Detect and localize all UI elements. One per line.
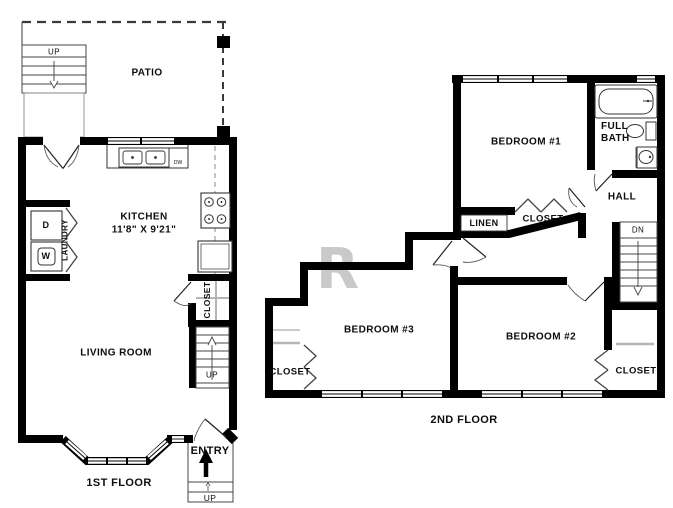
patio-label: PATIO [131,68,162,79]
dishwasher-label: DW [174,160,182,166]
full-bath-line1: FULL [601,121,630,133]
first-floor-title: 1ST FLOOR [86,477,151,489]
entry-steps-up-label: UP [204,493,217,503]
patio-stairs-up-label: UP [48,48,60,57]
bedroom2-label: BEDROOM #2 [506,332,576,343]
full-bath-label: FULL BATH [601,121,630,144]
bedroom3-closet-label: CLOSET [270,367,311,378]
interior-stairs-up-label: UP [206,371,218,380]
living-room-label: LIVING ROOM [80,348,152,359]
floor-plan: R [0,0,673,508]
bedroom1-label: BEDROOM #1 [491,137,561,148]
laundry-label: LAUNDRY [61,219,70,261]
dryer-label: D [43,220,50,230]
entry-area [188,419,235,502]
full-bath-line2: BATH [601,133,630,145]
kitchen-dimensions: 11'8" X 9'21" [112,225,176,236]
laundry-fixtures [31,208,77,272]
first-floor-closet-label: CLOSET [202,282,212,319]
kitchen-window [108,138,174,145]
floorplan-drawing: R [0,0,673,508]
bedroom3-label: BEDROOM #3 [344,325,414,336]
washer-label: W [42,251,51,261]
hall-label: HALL [608,192,636,203]
back-door [43,136,80,169]
bedroom1-closet-label: CLOSET [523,214,564,225]
patio-stairs [22,45,86,137]
second-floor-title: 2ND FLOOR [430,414,497,426]
stairs-down-label: DN [632,226,644,235]
bay-window [63,436,184,464]
entry-label: ENTRY [191,445,230,457]
kitchen-fixtures [107,145,232,274]
linen-label: LINEN [470,218,499,228]
kitchen-label: KITCHEN [120,212,167,223]
bedroom2-closet-label: CLOSET [616,366,657,377]
